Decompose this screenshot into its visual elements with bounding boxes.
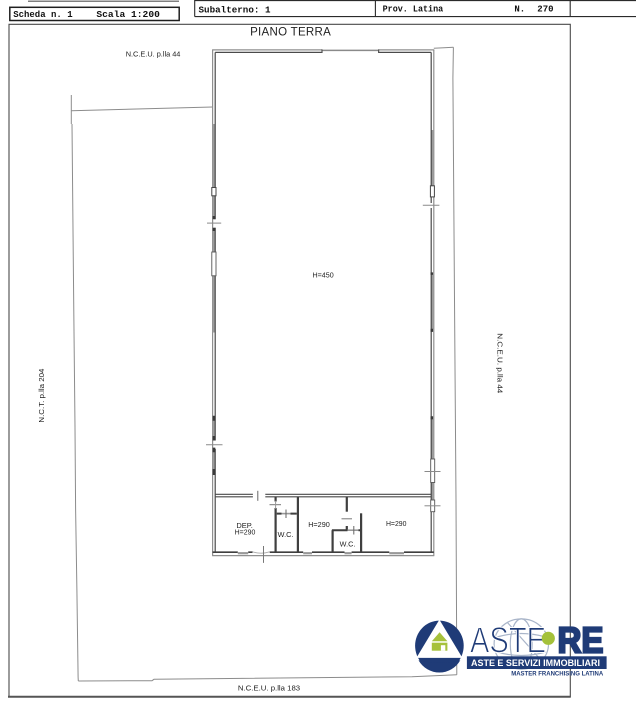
svg-text:H=290: H=290 xyxy=(308,520,330,529)
svg-text:RE: RE xyxy=(558,619,604,660)
svg-text:N.: N. xyxy=(514,5,525,15)
svg-text:Prov. Latina: Prov. Latina xyxy=(383,5,444,15)
svg-text:PIANO TERRA: PIANO TERRA xyxy=(250,26,331,38)
svg-text:ASTE: ASTE xyxy=(470,619,546,660)
svg-text:H=290: H=290 xyxy=(386,519,407,528)
svg-text:H=290: H=290 xyxy=(235,528,256,537)
svg-text:N.C.T. p.lla 204: N.C.T. p.lla 204 xyxy=(37,369,46,423)
svg-text:H=450: H=450 xyxy=(313,270,334,279)
svg-text:W.C.: W.C. xyxy=(340,539,356,548)
svg-text:Subalterno: 1: Subalterno: 1 xyxy=(199,5,271,16)
svg-text:N.C.E.U. p.lla 44: N.C.E.U. p.lla 44 xyxy=(126,49,181,58)
svg-text:N.C.E.U. p.lla 44: N.C.E.U. p.lla 44 xyxy=(496,333,505,393)
svg-text:W.C.: W.C. xyxy=(278,530,294,539)
svg-text:MASTER FRANCHISING LATINA: MASTER FRANCHISING LATINA xyxy=(511,671,604,678)
svg-text:Scheda n. 1: Scheda n. 1 xyxy=(13,10,73,20)
svg-text:270: 270 xyxy=(537,5,553,15)
svg-text:Scala 1:200: Scala 1:200 xyxy=(96,10,159,20)
svg-text:ASTE E SERVIZI IMMOBILIARI: ASTE E SERVIZI IMMOBILIARI xyxy=(471,658,600,668)
svg-text:N.C.E.U. p.lla 183: N.C.E.U. p.lla 183 xyxy=(238,684,300,693)
